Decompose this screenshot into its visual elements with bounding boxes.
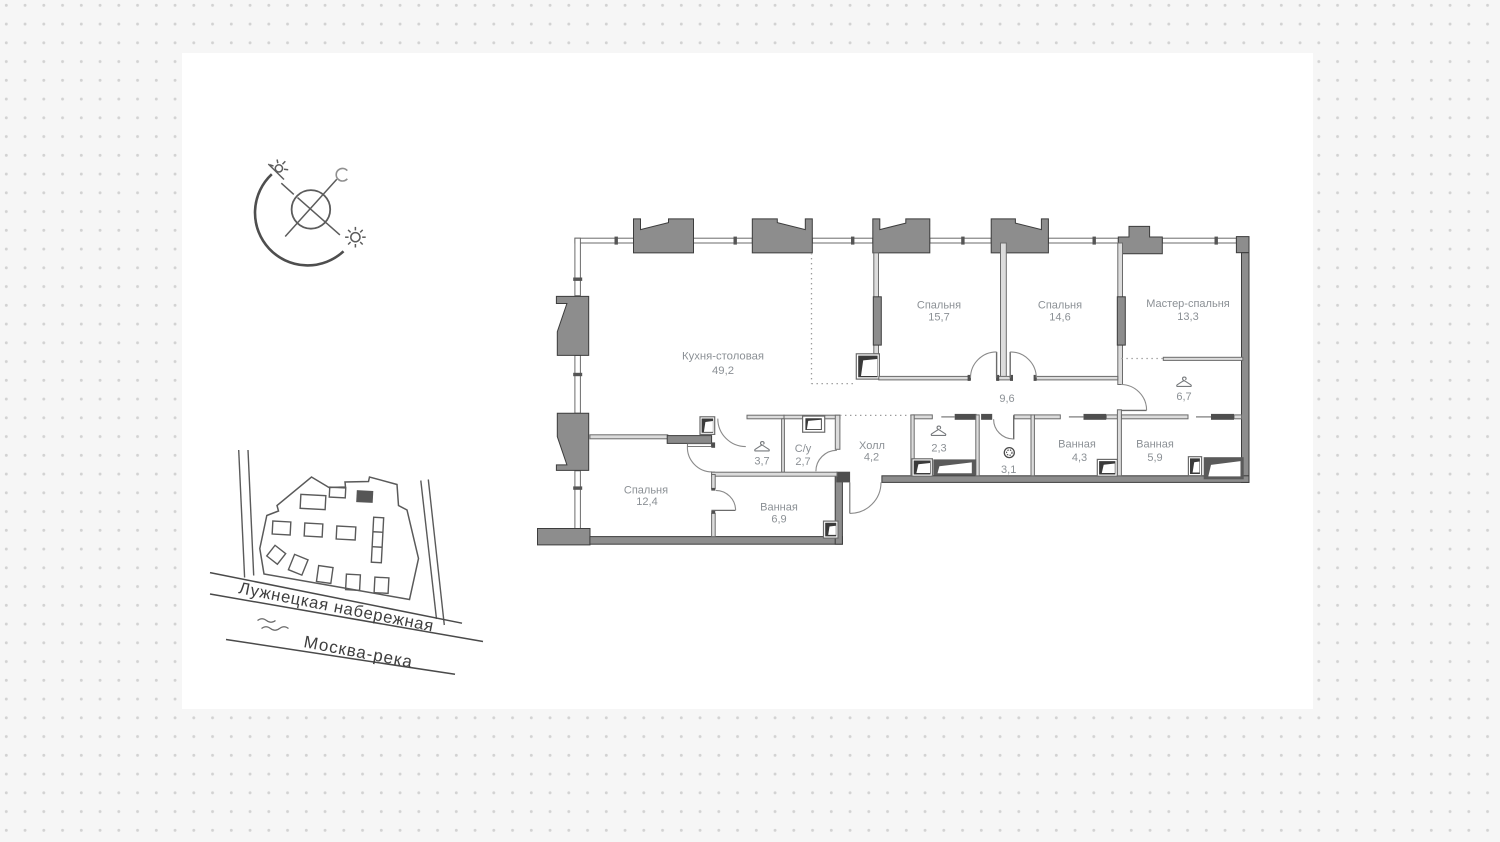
svg-text:Ванная: Ванная — [760, 502, 798, 514]
svg-text:15,7: 15,7 — [928, 312, 949, 324]
svg-text:Холл: Холл — [859, 440, 885, 452]
svg-text:Ванная: Ванная — [1058, 439, 1096, 451]
svg-text:Спальня: Спальня — [1038, 300, 1082, 312]
svg-text:4,2: 4,2 — [864, 452, 879, 464]
svg-text:2,3: 2,3 — [931, 443, 946, 455]
svg-text:6,7: 6,7 — [1176, 391, 1191, 403]
svg-text:Спальня: Спальня — [917, 300, 961, 312]
svg-text:3,7: 3,7 — [754, 456, 769, 468]
svg-text:4,3: 4,3 — [1072, 452, 1087, 464]
svg-text:9,6: 9,6 — [999, 393, 1014, 405]
svg-text:2,7: 2,7 — [795, 456, 810, 468]
svg-text:Мастер-спальня: Мастер-спальня — [1146, 298, 1230, 310]
svg-text:Спальня: Спальня — [624, 485, 668, 497]
svg-text:3,1: 3,1 — [1001, 464, 1016, 476]
svg-text:С/у: С/у — [795, 443, 812, 455]
svg-text:6,9: 6,9 — [771, 514, 786, 526]
svg-text:13,3: 13,3 — [1177, 311, 1198, 323]
svg-text:Ванная: Ванная — [1136, 439, 1174, 451]
svg-text:12,4: 12,4 — [636, 496, 657, 508]
svg-text:49,2: 49,2 — [712, 365, 734, 377]
svg-text:14,6: 14,6 — [1049, 312, 1070, 324]
svg-text:Кухня-столовая: Кухня-столовая — [682, 351, 764, 363]
svg-text:5,9: 5,9 — [1147, 452, 1162, 464]
